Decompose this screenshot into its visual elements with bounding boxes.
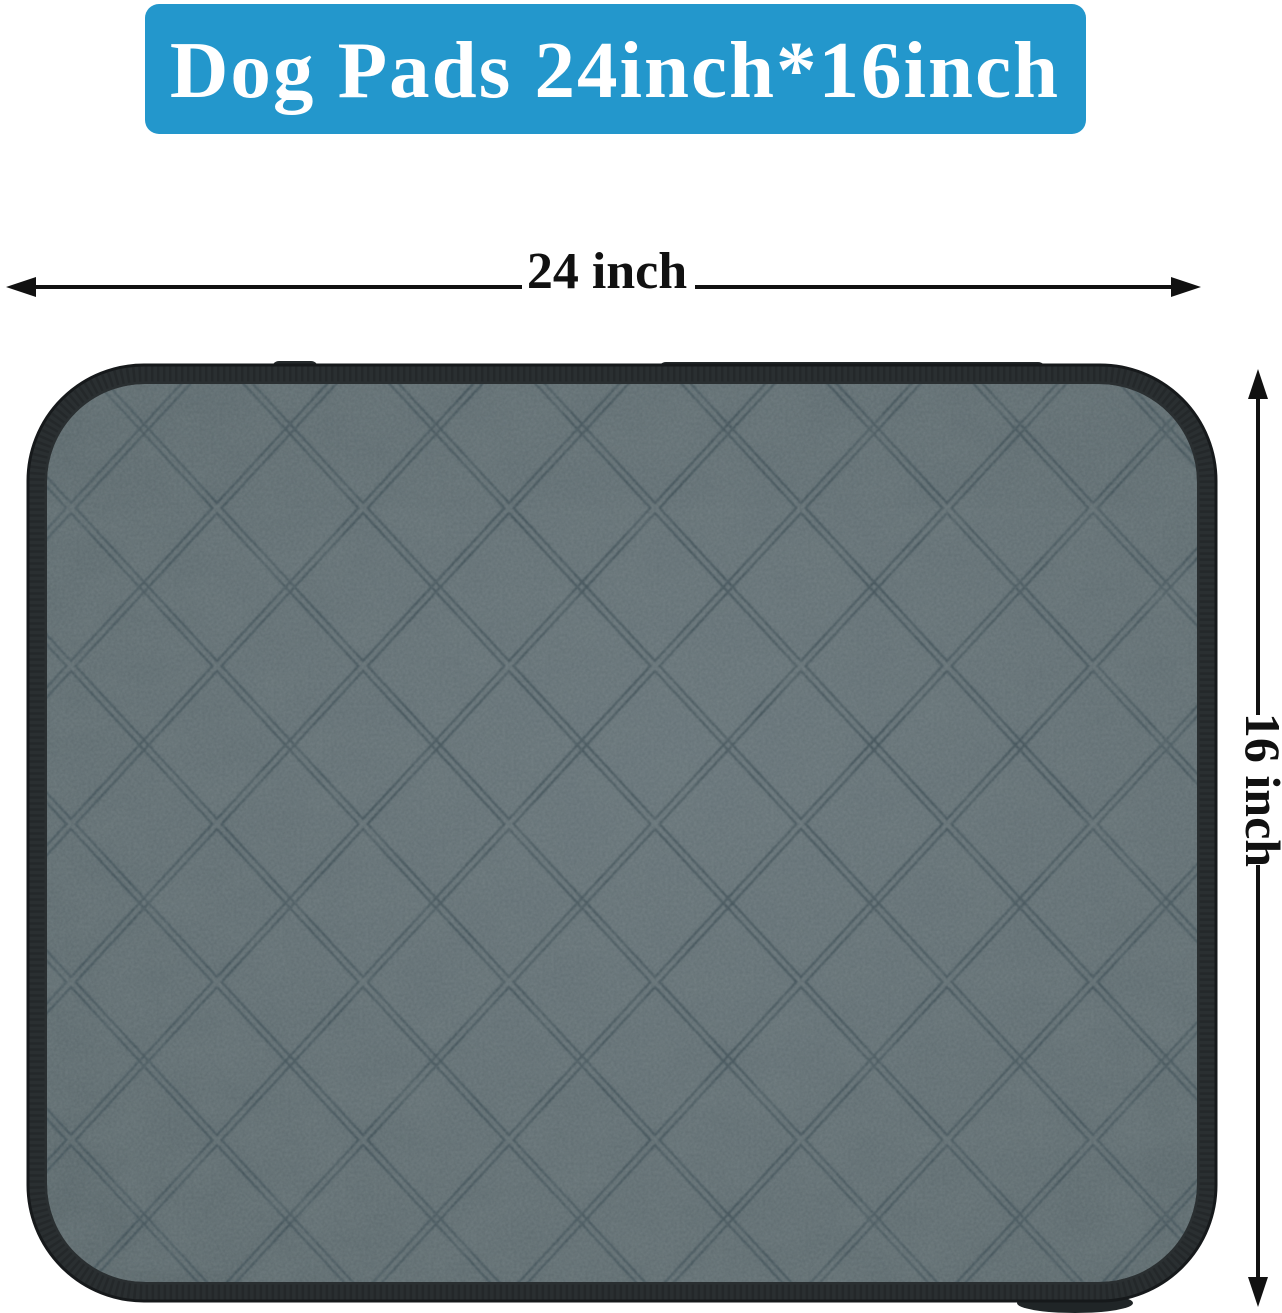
- svg-text:Dog Pads 24inch*16inch: Dog Pads 24inch*16inch: [170, 25, 1060, 115]
- svg-text:24 inch: 24 inch: [527, 243, 687, 300]
- svg-text:16 inch: 16 inch: [1235, 713, 1282, 867]
